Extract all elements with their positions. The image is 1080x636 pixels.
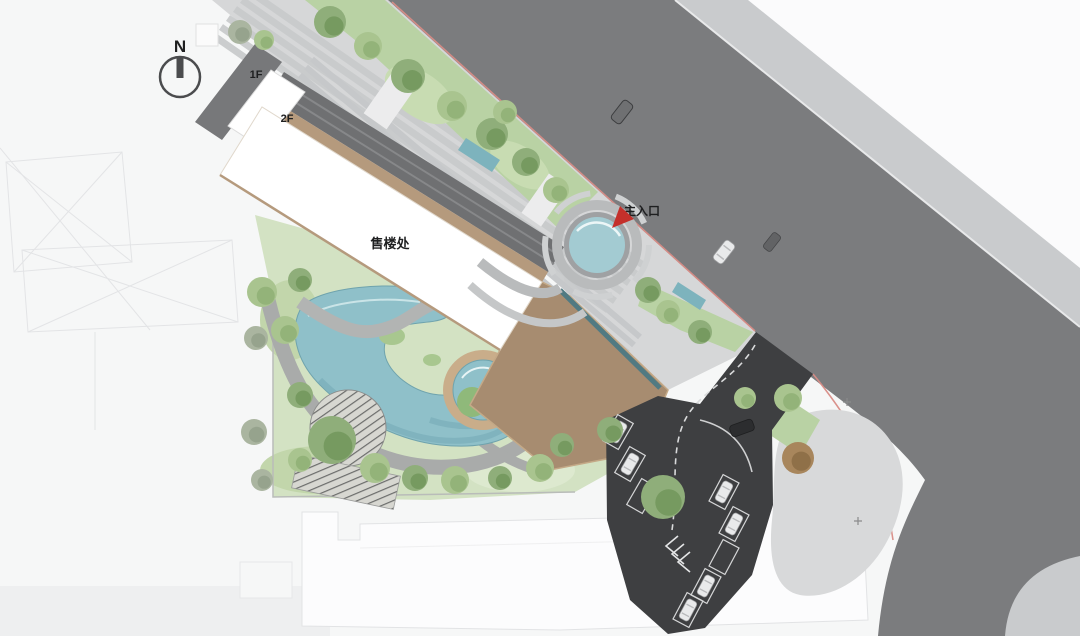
small-structure [196, 24, 218, 46]
floor-label-1f: 1F [250, 69, 263, 81]
north-label: N [174, 37, 186, 56]
building-label: 售楼处 [370, 236, 410, 251]
site-plan-canvas: N 1F 2F 售楼处 主入口 [0, 0, 1080, 636]
site-plan: N 1F 2F 售楼处 主入口 [0, 0, 1080, 636]
floor-label-2f: 2F [281, 113, 294, 125]
